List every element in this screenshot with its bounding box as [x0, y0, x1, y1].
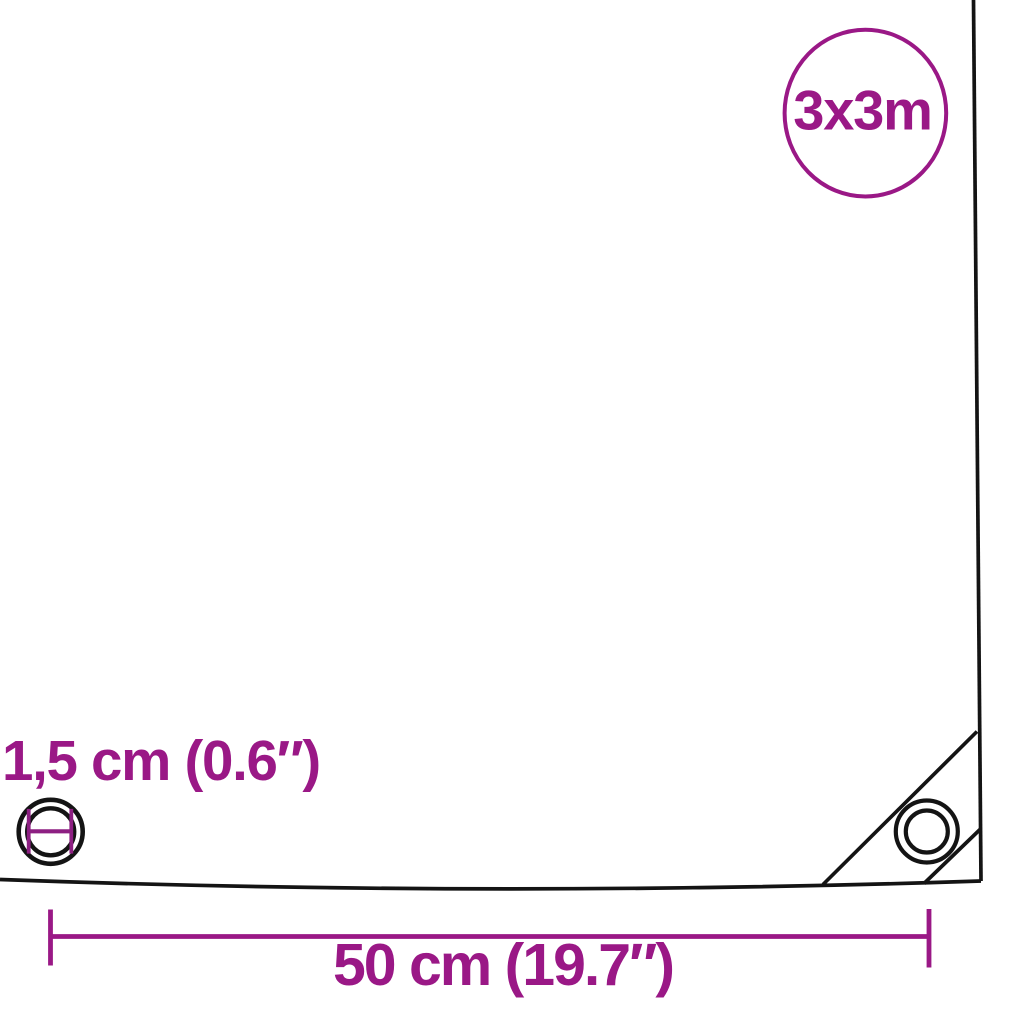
svg-text:50 cm (19.7″): 50 cm (19.7″)	[333, 932, 673, 998]
svg-text:1,5 cm (0.6″): 1,5 cm (0.6″)	[2, 729, 320, 792]
svg-text:3x3m: 3x3m	[793, 79, 931, 142]
